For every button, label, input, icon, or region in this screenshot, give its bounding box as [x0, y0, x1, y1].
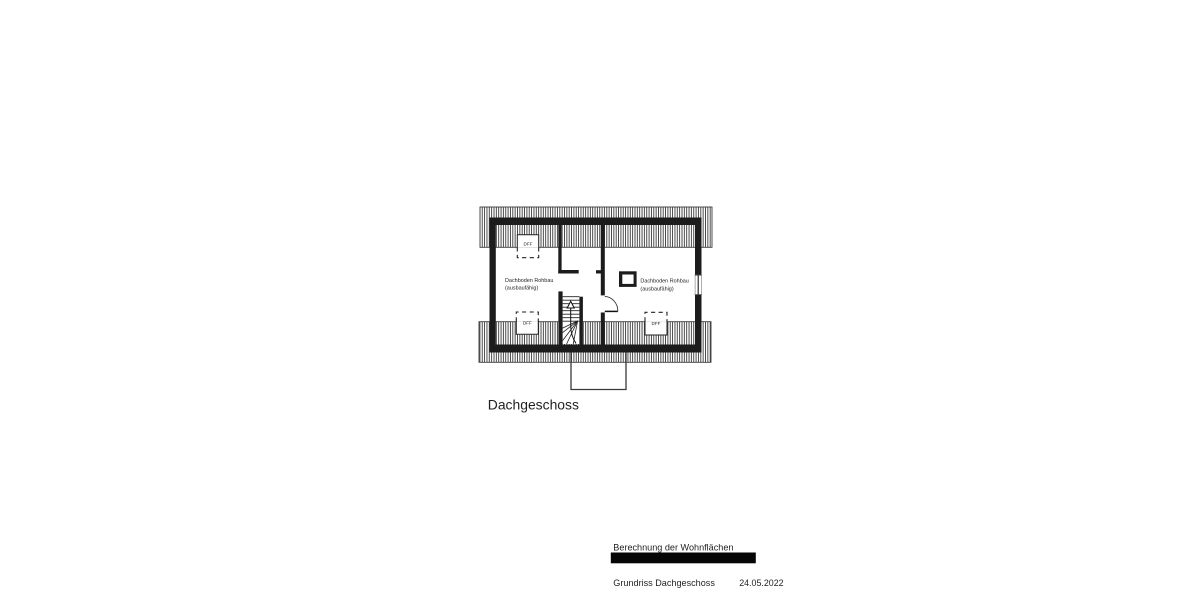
svg-text:Dachboden Rohbau: Dachboden Rohbau: [640, 279, 688, 285]
svg-text:Berechnung der Wohnflächen: Berechnung der Wohnflächen: [613, 542, 733, 552]
svg-text:24.05.2022: 24.05.2022: [739, 578, 783, 588]
svg-text:Grundriss Dachgeschoss: Grundriss Dachgeschoss: [613, 578, 715, 588]
svg-text:DFF: DFF: [652, 321, 661, 326]
svg-text:(ausbaufähig): (ausbaufähig): [505, 286, 538, 292]
svg-text:DFF: DFF: [524, 242, 533, 247]
svg-text:Dachgeschoss: Dachgeschoss: [488, 397, 579, 413]
svg-text:Dachboden Rohbau: Dachboden Rohbau: [505, 278, 553, 284]
svg-text:(ausbaufähig): (ausbaufähig): [640, 287, 673, 293]
svg-text:DFF: DFF: [523, 321, 532, 326]
